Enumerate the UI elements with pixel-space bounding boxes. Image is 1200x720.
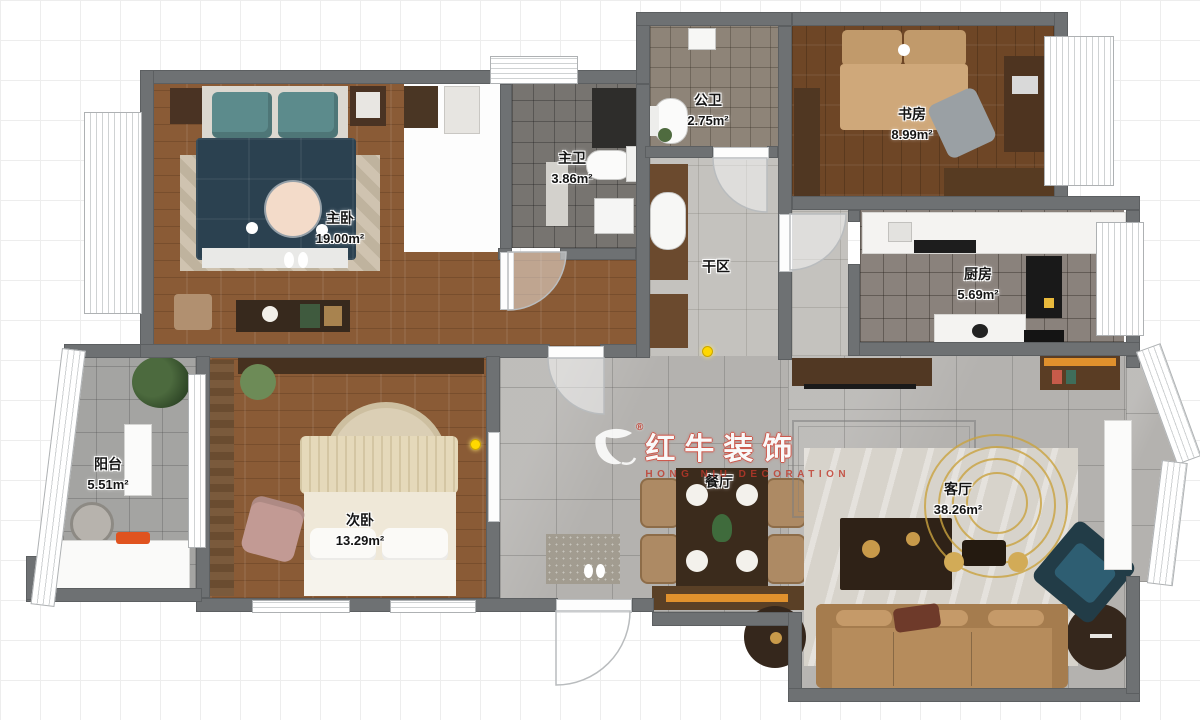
room-area: 5.51m² [87,475,128,495]
light-point-icon [702,346,713,357]
room-label-dry-area: 干区 [702,257,730,278]
room-area: 38.26m² [934,500,982,520]
room-name: 主卫 [551,148,592,169]
room-name: 厨房 [957,264,998,285]
light-point-icon [470,439,481,450]
room-label-living: 客厅 38.26m² [934,479,982,520]
brand-subtitle: HONG NIU DECORATION [645,469,850,480]
room-name: 阳台 [87,454,128,475]
room-label-second-bedroom: 次卧 13.29m² [336,510,384,551]
room-area: 19.00m² [316,229,364,249]
door-arc-entry [556,611,630,685]
room-area: 3.86m² [551,169,592,189]
room-name: 客厅 [934,479,982,500]
watermark-text: 红牛装饰 HONG NIU DECORATION [645,424,850,480]
room-label-master-bath: 主卫 3.86m² [551,148,592,189]
room-label-kitchen: 厨房 5.69m² [957,264,998,305]
room-label-study: 书房 8.99m² [891,104,932,145]
door-arc-bedroom2 [548,358,604,414]
room-area: 5.69m² [957,285,998,305]
room-area: 8.99m² [891,125,932,145]
bull-logo-icon [588,424,640,470]
room-label-master-bedroom: 主卧 19.00m² [316,208,364,249]
door-arc-public-bath [713,158,767,212]
door-arc-kitchen [790,214,846,270]
registered-mark: ® [636,422,643,433]
door-arc-master-bath [508,252,566,310]
room-label-public-bath: 公卫 2.75m² [687,90,728,131]
door-arcs-layer [0,0,1200,720]
room-label-balcony: 阳台 5.51m² [87,454,128,495]
room-area: 2.75m² [687,111,728,131]
brand-name: 红牛装饰 [645,424,850,468]
room-area: 13.29m² [336,531,384,551]
room-name: 主卧 [316,208,364,229]
room-name: 干区 [702,257,730,278]
room-name: 次卧 [336,510,384,531]
room-name: 公卫 [687,90,728,111]
floor-plan-canvas: 主卧 19.00m² 主卫 3.86m² 公卫 2.75m² 书房 8.99m²… [0,0,1200,720]
watermark: ® 红牛装饰 HONG NIU DECORATION [588,424,850,480]
room-name: 书房 [891,104,932,125]
